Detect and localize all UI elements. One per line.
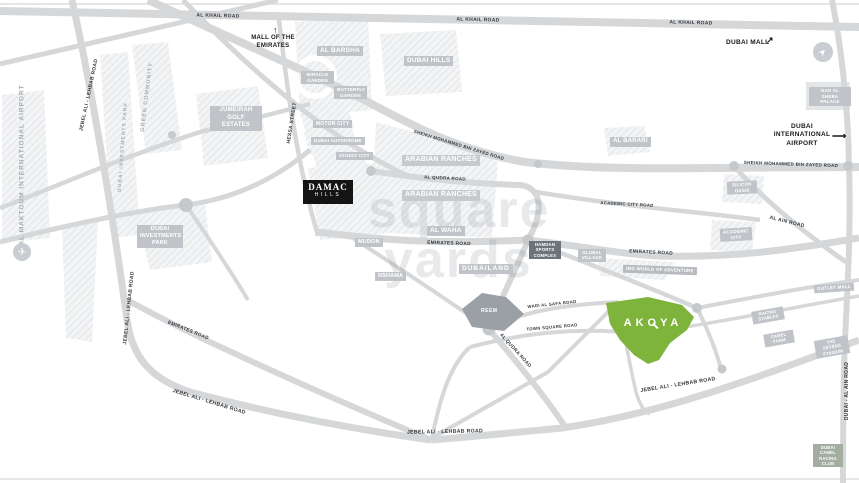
area-label-arabian-ranches-1: ARABIAN RANCHES (402, 155, 480, 166)
compass-glyph: ➤ (816, 45, 829, 58)
area-label-hamdan-sports-complex: HAMDAN SPORTS COMPLEX (529, 241, 561, 259)
area-label-motor-city: MOTOR CITY (313, 120, 352, 128)
mall-of-the-emirates-label: MALL OF THE EMIRATES (251, 35, 295, 51)
area-label-dubailand: DUBAILAND (459, 264, 513, 274)
southwest-wedge-area (62, 220, 98, 342)
dubai-international-airport-arrow: ⟶ (832, 130, 847, 143)
road-label-al-khail-3: AL KHAIL ROAD (669, 19, 712, 26)
compass-icon: ➤ (813, 42, 833, 62)
area-label-al-waha: AL WAHA (427, 226, 465, 236)
akoya-project-area (606, 297, 694, 364)
location-map: square yards AL KHAIL ROAD AL KHAIL ROAD… (0, 0, 859, 483)
area-label-camel-racing-club: DUBAI CAMEL RACING CLUB (813, 444, 843, 467)
area-label-damac-hills: DAMAC HILLS (303, 180, 353, 204)
area-label-nad-al-sheba-palace: NAD AL SHEBA PALACE (809, 87, 851, 106)
area-label-nshama: NSHAMA (375, 272, 406, 281)
area-label-silicon-oasis: SILICON OASIS (727, 180, 758, 195)
area-label-mudon: MUDON (355, 238, 383, 247)
area-label-reem: REEM (481, 308, 497, 314)
area-label-al-maktoum-airport: AL MAKTOUM INTERNATIONAL AIRPORT (19, 84, 26, 245)
road-label-al-khail-2: AL KHAIL ROAD (456, 16, 499, 23)
almaktoum-plane-icon: ✈ (13, 243, 31, 261)
area-label-miracle-garden: MIRACLE GARDEN (301, 71, 334, 84)
dubai-mall-arrow: ↗ (766, 35, 774, 47)
dubai-mall-label: DUBAI MALL (726, 39, 769, 47)
area-label-global-village: GLOBAL VILLAGE (578, 249, 606, 262)
area-label-butterfly-garden: BUTTERFLY GARDEN (334, 86, 367, 99)
area-label-jumeirah-golf-estates: JUMEIRAH GOLF ESTATES (210, 106, 262, 131)
area-label-studio-city: STUDIO CITY (336, 152, 373, 160)
road-label-al-khail-1: AL KHAIL ROAD (196, 12, 239, 19)
dubai-international-airport-label: DUBAI INTERNATIONAL AIRPORT (772, 123, 832, 148)
plane-glyph: ✈ (18, 247, 26, 258)
area-label-al-barsha: AL BARSHA (317, 46, 363, 56)
area-label-dubai-autodrome: DUBAI AUTODROME (311, 137, 365, 145)
area-label-arabian-ranches-2: ARABIAN RANCHES (402, 190, 480, 201)
road-label-dubai-al-ain-vert: DUBAI - AL AIN ROAD (844, 362, 850, 420)
area-label-dubai-hills: DUBAI HILLS (404, 56, 453, 66)
almaktoum-airport-area (2, 90, 50, 243)
damac-hills-line1: DAMAC (303, 183, 353, 192)
area-label-academic-city: ACADEMIC CITY (720, 227, 753, 242)
watermark-line2: yards (384, 230, 533, 290)
damac-hills-line2: HILLS (303, 193, 353, 198)
area-label-dubai-investments-park: DUBAI INVESTMENTS PARK (137, 225, 183, 248)
area-label-al-barari: AL BARARI (610, 137, 651, 147)
